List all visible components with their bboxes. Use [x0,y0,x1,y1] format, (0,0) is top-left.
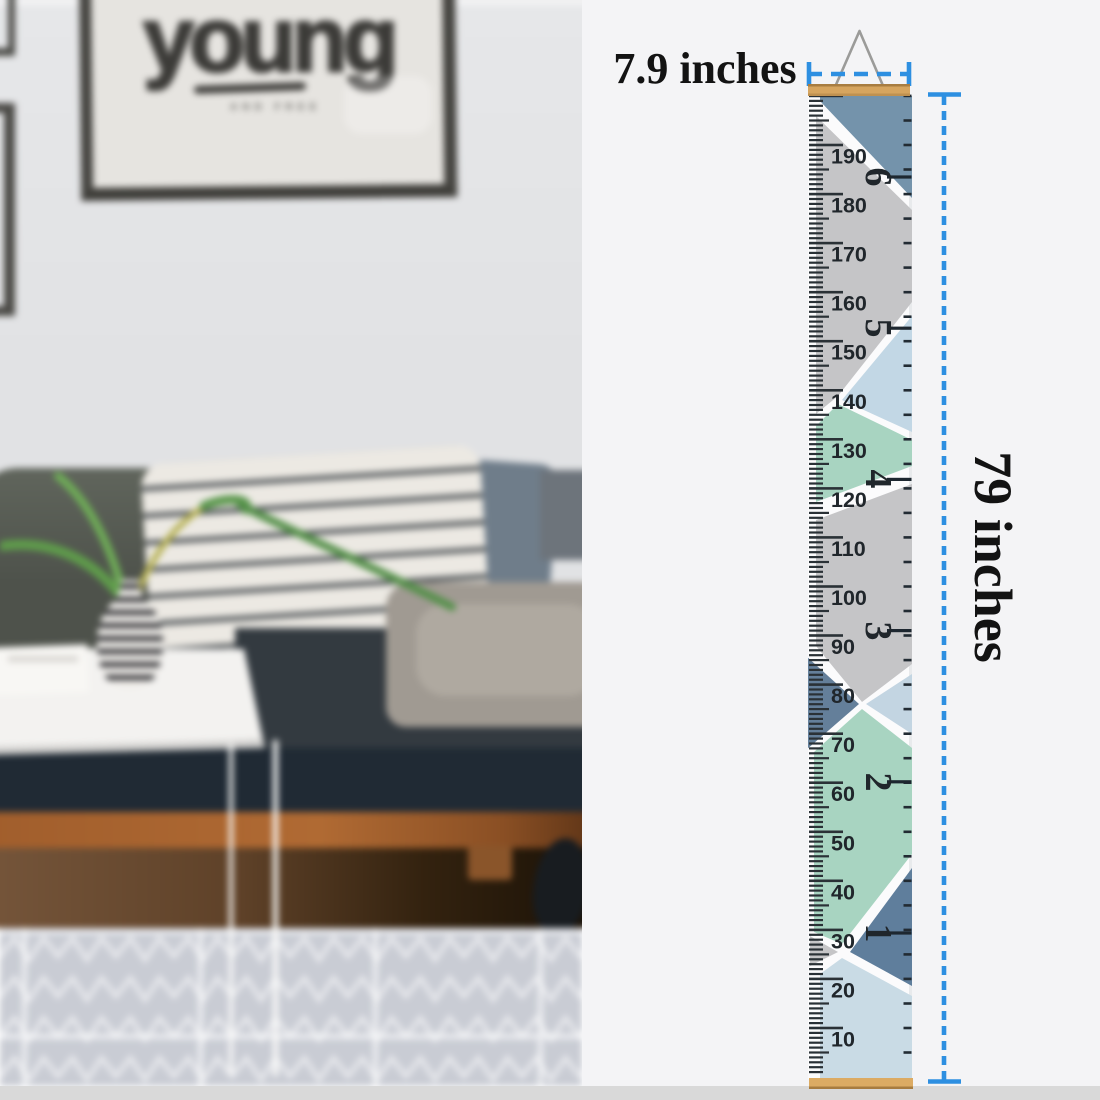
svg-text:150: 150 [831,341,867,365]
svg-text:160: 160 [831,292,867,316]
svg-text:7.9 inches: 7.9 inches [613,44,796,93]
svg-text:1: 1 [857,924,899,943]
svg-text:5: 5 [857,319,899,338]
svg-text:10: 10 [831,1028,855,1052]
svg-text:2: 2 [857,773,899,792]
svg-text:6: 6 [857,168,899,187]
svg-text:20: 20 [831,978,855,1002]
svg-text:70: 70 [831,733,855,757]
svg-text:40: 40 [831,880,855,904]
svg-text:170: 170 [831,243,867,267]
svg-text:79 inches: 79 inches [963,451,1023,663]
svg-text:50: 50 [831,831,855,855]
svg-text:110: 110 [831,537,866,561]
svg-text:130: 130 [831,439,867,463]
svg-text:4: 4 [857,470,899,489]
svg-text:3: 3 [857,622,899,641]
svg-text:120: 120 [831,488,867,512]
svg-text:100: 100 [831,586,867,610]
svg-text:180: 180 [831,194,867,218]
svg-text:140: 140 [831,390,867,414]
svg-text:60: 60 [831,782,855,806]
svg-text:80: 80 [831,684,855,708]
svg-text:190: 190 [831,145,867,169]
svg-text:30: 30 [831,929,855,953]
svg-text:90: 90 [831,635,855,659]
